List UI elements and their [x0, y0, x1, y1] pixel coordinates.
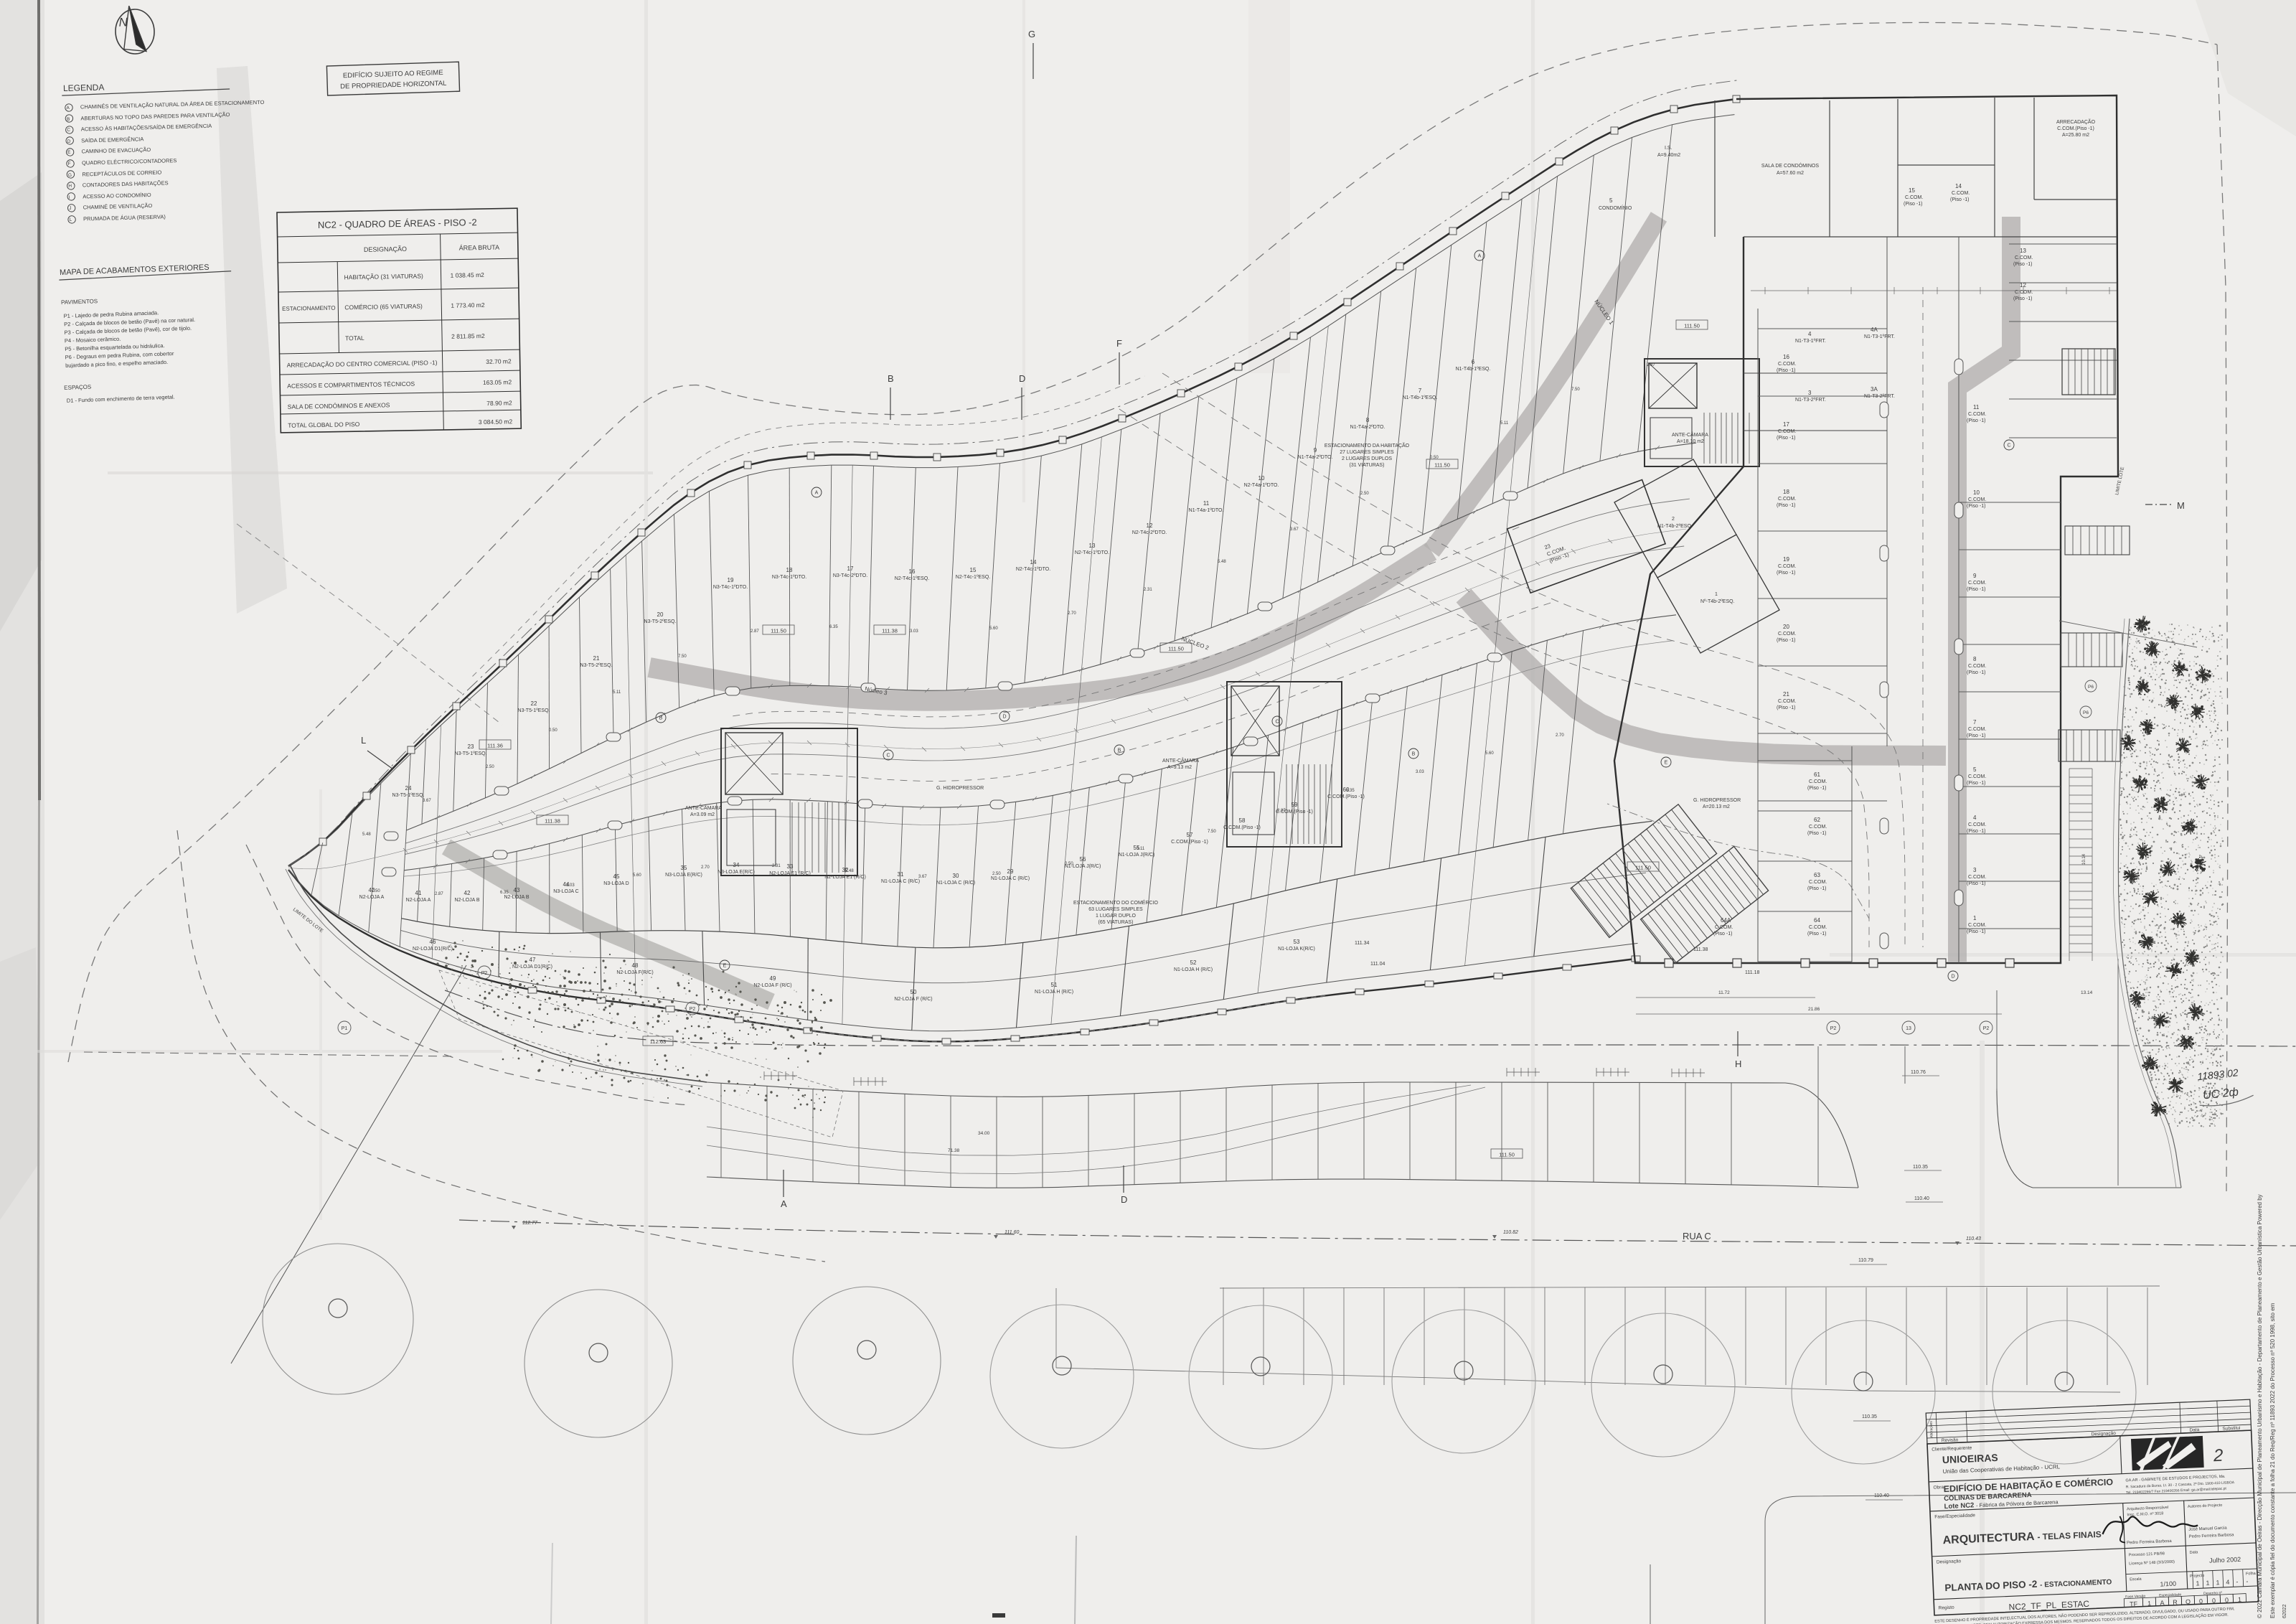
svg-text:22: 22 — [531, 700, 537, 707]
svg-text:15: 15 — [1909, 187, 1915, 194]
svg-text:C.COM.: C.COM. — [1968, 875, 1986, 880]
svg-text:18: 18 — [786, 567, 793, 573]
svg-text:RUA C: RUA C — [1683, 1231, 1711, 1242]
svg-text:N2-LOJA B: N2-LOJA B — [454, 898, 479, 903]
svg-text:N2-LOJA B: N2-LOJA B — [504, 895, 529, 900]
svg-text:9: 9 — [1314, 447, 1317, 454]
svg-text:5: 5 — [1973, 766, 1977, 773]
svg-text:(Piso -1): (Piso -1) — [1713, 931, 1732, 937]
svg-text:F: F — [67, 161, 70, 166]
svg-text:(Piso -1): (Piso -1) — [2013, 296, 2032, 301]
svg-text:(Piso -1): (Piso -1) — [1950, 197, 1969, 202]
svg-text:112.63: 112.63 — [650, 1038, 666, 1045]
svg-text:LEGENDA: LEGENDA — [63, 83, 105, 93]
svg-text:78.90 m2: 78.90 m2 — [486, 399, 512, 407]
svg-text:A: A — [1478, 254, 1482, 259]
svg-text:53: 53 — [1294, 939, 1300, 945]
svg-text:J: J — [69, 206, 71, 211]
svg-text:14: 14 — [1955, 183, 1962, 189]
svg-text:ANTE-CÂMARA: ANTE-CÂMARA — [685, 804, 722, 811]
svg-text:1: 1 — [1973, 915, 1977, 921]
svg-text:TOTAL: TOTAL — [345, 334, 364, 342]
svg-text:C.COM.: C.COM. — [1968, 497, 1986, 502]
svg-text:(Piso -1): (Piso -1) — [1967, 418, 1985, 423]
svg-text:P6: P6 — [2083, 710, 2089, 715]
svg-text:N1-LOJA K(R/C): N1-LOJA K(R/C) — [1278, 947, 1315, 952]
svg-text:ESTACIONAMENTO DA HABITAÇÃO: ESTACIONAMENTO DA HABITAÇÃO — [1325, 442, 1410, 449]
svg-text:C.COM.: C.COM. — [1809, 925, 1827, 930]
svg-text:5.11: 5.11 — [613, 690, 621, 695]
svg-text:C.COM.: C.COM. — [2015, 255, 2033, 261]
svg-text:H: H — [68, 184, 72, 189]
svg-text:ARRECADAÇÃO: ARRECADAÇÃO — [2056, 118, 2096, 125]
svg-text:6: 6 — [1472, 359, 1475, 365]
svg-text:30: 30 — [953, 873, 959, 879]
svg-text:N2-T4a-1ºDTO.: N2-T4a-1ºDTO. — [1244, 483, 1279, 488]
svg-text:N1-LOJA H (R/C): N1-LOJA H (R/C) — [1174, 967, 1213, 972]
svg-text:31: 31 — [898, 871, 904, 878]
svg-text:52: 52 — [1190, 959, 1197, 966]
svg-text:C.COM.: C.COM. — [1809, 825, 1827, 830]
svg-text:N1-T4b-1ºESQ.: N1-T4b-1ºESQ. — [1456, 367, 1491, 372]
svg-text:13: 13 — [1089, 543, 1096, 549]
svg-text:3 084.50 m2: 3 084.50 m2 — [479, 418, 513, 426]
svg-text:43: 43 — [514, 887, 520, 893]
svg-text:3: 3 — [1973, 867, 1977, 873]
svg-text:42: 42 — [464, 890, 471, 896]
svg-text:1: 1 — [1715, 592, 1718, 597]
svg-text:C.COM.: C.COM. — [1968, 822, 1986, 827]
svg-text:13: 13 — [1906, 1026, 1911, 1031]
svg-text:N3-T4c-1ºDTO.: N3-T4c-1ºDTO. — [713, 585, 748, 590]
svg-text:N3-LOJA D: N3-LOJA D — [603, 881, 629, 886]
svg-text:N1-T4a-2ºDTO.: N1-T4a-2ºDTO. — [1298, 455, 1333, 460]
svg-text:N1-T3-1ºFRT.: N1-T3-1ºFRT. — [1864, 334, 1895, 339]
svg-text:27 LUGARES SIMPLES: 27 LUGARES SIMPLES — [1340, 450, 1394, 455]
svg-text:N2-LOJA D1(R/C): N2-LOJA D1(R/C) — [512, 964, 552, 970]
svg-text:3: 3 — [1808, 390, 1812, 396]
svg-text:C.COM.: C.COM. — [1968, 727, 1986, 732]
svg-text:4A: 4A — [1871, 327, 1878, 333]
svg-text:E: E — [723, 964, 727, 969]
svg-text:A=25.80 m2: A=25.80 m2 — [2062, 133, 2089, 138]
svg-text:(Piso -1): (Piso -1) — [1904, 202, 1922, 207]
svg-text:(Piso -1): (Piso -1) — [1967, 781, 1985, 786]
svg-text:A=20.13 m2: A=20.13 m2 — [1703, 804, 1730, 809]
svg-text:2 LUGARES DUPLOS: 2 LUGARES DUPLOS — [1342, 456, 1392, 461]
svg-text:B: B — [659, 716, 663, 721]
svg-text:N1-LOJA J(R/C): N1-LOJA J(R/C) — [1119, 853, 1155, 858]
svg-text:P6: P6 — [2088, 685, 2094, 690]
svg-text:A=57.60 m2: A=57.60 m2 — [1777, 171, 1804, 176]
svg-text:N1-T4b-1ºESQ.: N1-T4b-1ºESQ. — [1403, 395, 1438, 400]
svg-text:N1-T3-2ºFRT.: N1-T3-2ºFRT. — [1795, 398, 1826, 403]
svg-text:1 038.45 m2: 1 038.45 m2 — [450, 271, 484, 279]
svg-text:4: 4 — [1808, 331, 1812, 337]
svg-text:C: C — [67, 128, 70, 133]
svg-text:110.82: 110.82 — [1503, 1230, 1518, 1235]
svg-text:G. HIDROPRESSOR: G. HIDROPRESSOR — [1693, 798, 1741, 803]
svg-text:C.COM.(Piso -1): C.COM.(Piso -1) — [1276, 809, 1313, 815]
svg-text:49: 49 — [770, 975, 776, 982]
svg-text:21: 21 — [1783, 691, 1789, 698]
svg-text:11.72: 11.72 — [1718, 990, 1730, 995]
svg-text:23: 23 — [468, 743, 474, 750]
svg-text:41: 41 — [415, 890, 422, 896]
svg-text:N1-LOJA H (R/C): N1-LOJA H (R/C) — [1035, 990, 1073, 995]
svg-text:A=18.10 m2: A=18.10 m2 — [1677, 439, 1704, 444]
svg-text:21: 21 — [593, 655, 600, 662]
svg-text:G. HIDROPRESSOR: G. HIDROPRESSOR — [936, 786, 984, 791]
svg-text:24: 24 — [405, 785, 412, 792]
svg-text:N2-T4c-1ºESQ.: N2-T4c-1ºESQ. — [895, 576, 930, 581]
svg-text:5.11: 5.11 — [1500, 421, 1509, 426]
svg-text:10.14: 10.14 — [2082, 853, 2086, 865]
svg-text:N2-LOJA F (R/C): N2-LOJA F (R/C) — [753, 983, 791, 988]
svg-text:2.70: 2.70 — [701, 865, 710, 870]
svg-text:N3-LOJA C: N3-LOJA C — [553, 889, 578, 894]
svg-text:N2-T4c-1ºDTO.: N2-T4c-1ºDTO. — [1016, 567, 1050, 572]
svg-text:N2-LOJA A: N2-LOJA A — [406, 898, 431, 903]
svg-text:18: 18 — [1783, 489, 1789, 495]
svg-text:C.COM.: C.COM. — [1905, 195, 1923, 200]
svg-text:N1-LOJA J(R/C): N1-LOJA J(R/C) — [1065, 864, 1101, 869]
svg-text:60: 60 — [1343, 787, 1350, 793]
svg-text:P1: P1 — [342, 1026, 348, 1031]
svg-text:2.31: 2.31 — [772, 864, 781, 868]
svg-text:17: 17 — [847, 565, 854, 572]
svg-text:C.COM.(Piso -1): C.COM.(Piso -1) — [1171, 840, 1208, 845]
svg-text:HABITAÇÃO (31 VIATURAS): HABITAÇÃO (31 VIATURAS) — [344, 272, 424, 281]
svg-text:11: 11 — [1203, 500, 1210, 507]
svg-text:8: 8 — [1366, 417, 1370, 423]
svg-text:7: 7 — [1973, 719, 1977, 726]
svg-text:N2-T4c-1ºDTO.: N2-T4c-1ºDTO. — [1075, 550, 1109, 555]
svg-text:D: D — [1951, 975, 1954, 980]
svg-text:N2-LOJA A: N2-LOJA A — [359, 895, 385, 900]
svg-text:17: 17 — [1783, 421, 1789, 428]
svg-text:N1-T4b-2ºESQ.: N1-T4b-2ºESQ. — [1657, 524, 1693, 529]
svg-text:N1-T3-2ºFRT.: N1-T3-2ºFRT. — [1864, 394, 1895, 399]
svg-text:15: 15 — [970, 567, 977, 573]
svg-text:2: 2 — [1672, 517, 1675, 522]
svg-text:61: 61 — [1814, 771, 1820, 778]
svg-text:3.03: 3.03 — [1416, 770, 1424, 774]
svg-text:N3-T5-2ºESQ.: N3-T5-2ºESQ. — [580, 663, 613, 668]
svg-text:63: 63 — [1814, 872, 1820, 878]
svg-text:N3-LOJA E(R/C): N3-LOJA E(R/C) — [665, 873, 702, 878]
svg-text:N3-T4c-2ºDTO.: N3-T4c-2ºDTO. — [833, 573, 867, 578]
svg-text:71.38: 71.38 — [948, 1148, 960, 1153]
svg-text:56: 56 — [1080, 856, 1086, 863]
svg-text:33: 33 — [787, 863, 794, 870]
svg-text:14: 14 — [1030, 559, 1037, 565]
svg-text:163.05 m2: 163.05 m2 — [483, 378, 512, 386]
svg-text:16: 16 — [909, 568, 916, 575]
svg-text:10: 10 — [1973, 489, 1980, 496]
svg-text:C.COM.: C.COM. — [1968, 774, 1986, 779]
svg-text:A=3.09 m2: A=3.09 m2 — [690, 812, 715, 817]
svg-text:44: 44 — [563, 881, 570, 888]
svg-text:(Piso -1): (Piso -1) — [1967, 733, 1985, 738]
svg-text:7.50: 7.50 — [1571, 388, 1580, 392]
svg-text:G: G — [68, 173, 72, 178]
svg-text:(Piso -1): (Piso -1) — [2013, 262, 2032, 267]
svg-text:112.77: 112.77 — [522, 1221, 538, 1226]
svg-text:N1-T4a-2ºDTO.: N1-T4a-2ºDTO. — [1350, 425, 1385, 430]
svg-text:2.70: 2.70 — [1068, 611, 1076, 616]
svg-text:20: 20 — [657, 611, 664, 618]
svg-text:C.COM.: C.COM. — [1778, 429, 1796, 434]
svg-text:C.COM.(Piso -1): C.COM.(Piso -1) — [1223, 825, 1261, 830]
svg-text:C.COM.: C.COM. — [1952, 191, 1970, 196]
svg-text:16: 16 — [1783, 354, 1789, 360]
svg-text:40: 40 — [369, 887, 375, 893]
svg-text:N3-T5-1ºESQ.: N3-T5-1ºESQ. — [392, 793, 425, 798]
svg-text:C.COM.: C.COM. — [1809, 779, 1827, 784]
svg-text:(Piso -1): (Piso -1) — [1777, 503, 1795, 508]
svg-text:7.50: 7.50 — [1208, 830, 1216, 834]
svg-text:5.48: 5.48 — [362, 832, 371, 837]
svg-text:63 LUGARES SIMPLES: 63 LUGARES SIMPLES — [1088, 907, 1143, 912]
svg-text:ESPAÇOS: ESPAÇOS — [64, 384, 91, 391]
svg-text:3.67: 3.67 — [423, 799, 431, 803]
svg-text:C: C — [886, 754, 890, 759]
svg-text:(Piso -1): (Piso -1) — [1967, 587, 1985, 592]
svg-text:21.86: 21.86 — [1808, 1007, 1820, 1012]
svg-text:A=9.13 m2: A=9.13 m2 — [1167, 765, 1192, 770]
svg-text:6.35: 6.35 — [829, 625, 838, 629]
svg-text:(Piso -1): (Piso -1) — [1807, 831, 1826, 836]
svg-text:DESIGNAÇÃO: DESIGNAÇÃO — [364, 245, 407, 253]
svg-text:2 811.85 m2: 2 811.85 m2 — [451, 332, 485, 340]
svg-text:48: 48 — [632, 962, 639, 969]
svg-text:N2-T4c-1ºESQ.: N2-T4c-1ºESQ. — [956, 575, 991, 580]
svg-text:10: 10 — [1258, 475, 1265, 482]
svg-text:47: 47 — [530, 957, 536, 963]
svg-text:N3-T4c-1ºDTO.: N3-T4c-1ºDTO. — [772, 575, 806, 580]
svg-text:M: M — [2177, 500, 2185, 511]
svg-text:(Piso -1): (Piso -1) — [1967, 670, 1985, 675]
svg-text:(Piso -1): (Piso -1) — [1777, 638, 1795, 643]
svg-text:(Piso -1): (Piso -1) — [1807, 786, 1826, 791]
svg-text:ANTE-CÂMARA: ANTE-CÂMARA — [1162, 757, 1199, 764]
svg-text:64: 64 — [1814, 917, 1820, 924]
svg-text:D: D — [67, 139, 71, 144]
svg-text:D: D — [1002, 715, 1006, 720]
svg-text:2.31: 2.31 — [1144, 588, 1152, 592]
svg-text:32.70 m2: 32.70 m2 — [486, 357, 512, 365]
svg-text:C.COM.: C.COM. — [1809, 880, 1827, 885]
svg-text:C.COM.: C.COM. — [1968, 412, 1986, 417]
svg-text:1 LUGAR DUPLO: 1 LUGAR DUPLO — [1096, 914, 1137, 919]
svg-text:N1-T3-1ºFRT.: N1-T3-1ºFRT. — [1795, 339, 1826, 344]
svg-text:3.03: 3.03 — [910, 629, 918, 634]
svg-text:5.60: 5.60 — [633, 873, 641, 878]
svg-text:110.76: 110.76 — [1911, 1070, 1926, 1075]
svg-text:35: 35 — [681, 865, 687, 871]
svg-text:5: 5 — [1609, 197, 1613, 204]
svg-text:C.COM.: C.COM. — [1968, 664, 1986, 669]
svg-text:(65 VIATURAS): (65 VIATURAS) — [1098, 920, 1134, 925]
svg-text:N1-LOJA C (R/C): N1-LOJA C (R/C) — [936, 881, 975, 886]
svg-text:I.S.: I.S. — [1665, 146, 1672, 151]
svg-text:C.COM.(Piso -1): C.COM.(Piso -1) — [1327, 794, 1365, 799]
svg-text:110.40: 110.40 — [1914, 1196, 1929, 1201]
svg-text:5.60: 5.60 — [1485, 751, 1494, 756]
svg-text:L: L — [70, 217, 72, 222]
svg-text:55: 55 — [1134, 845, 1140, 851]
svg-text:4: 4 — [1973, 815, 1977, 821]
svg-text:(Piso -1): (Piso -1) — [1777, 436, 1795, 441]
svg-text:N2-LOJA F(R/C): N2-LOJA F(R/C) — [616, 970, 653, 975]
svg-text:P2: P2 — [1983, 1026, 1990, 1031]
svg-text:C.COM.: C.COM. — [1778, 632, 1796, 637]
svg-text:(31 VIATURAS): (31 VIATURAS) — [1350, 463, 1385, 468]
svg-text:C.COM.(Piso -1): C.COM.(Piso -1) — [2057, 126, 2094, 131]
svg-text:20: 20 — [1783, 624, 1789, 630]
svg-text:58: 58 — [1239, 817, 1246, 824]
svg-text:(Piso -1): (Piso -1) — [1777, 368, 1795, 373]
svg-text:Nº-T4b-2ºESQ.: Nº-T4b-2ºESQ. — [1700, 599, 1735, 604]
svg-text:C.COM.: C.COM. — [1968, 923, 1986, 928]
svg-text:(Piso -1): (Piso -1) — [1777, 571, 1795, 576]
svg-text:C: C — [2007, 443, 2010, 449]
svg-text:(Piso -1): (Piso -1) — [1967, 504, 1985, 509]
svg-text:62: 62 — [1814, 817, 1820, 823]
svg-text:N2-LOJA F (R/C): N2-LOJA F (R/C) — [894, 997, 932, 1002]
svg-text:19: 19 — [728, 577, 734, 583]
svg-text:(Piso -1): (Piso -1) — [1807, 886, 1826, 891]
svg-text:C.COM.: C.COM. — [1778, 497, 1796, 502]
svg-text:B: B — [67, 117, 70, 122]
svg-text:19: 19 — [1783, 556, 1789, 563]
svg-text:3.67: 3.67 — [1290, 527, 1299, 532]
svg-text:(Piso -1): (Piso -1) — [1777, 705, 1795, 710]
svg-text:0.50: 0.50 — [549, 728, 557, 733]
svg-text:N3-LOJA E(R/C): N3-LOJA E(R/C) — [717, 870, 755, 875]
svg-text:C: C — [1275, 720, 1279, 725]
svg-text:7.50: 7.50 — [678, 654, 687, 659]
svg-text:13: 13 — [2020, 248, 2026, 254]
svg-text:ÁREA BRUTA: ÁREA BRUTA — [459, 244, 500, 252]
svg-text:(Piso -1): (Piso -1) — [1967, 829, 1985, 834]
svg-text:51: 51 — [1051, 982, 1058, 988]
svg-text:3A: 3A — [1871, 386, 1878, 393]
svg-text:E: E — [1665, 761, 1668, 766]
svg-text:2.50: 2.50 — [486, 765, 494, 769]
svg-text:1 773.40 m2: 1 773.40 m2 — [451, 301, 485, 309]
svg-text:13.14: 13.14 — [2081, 990, 2093, 995]
svg-text:N: N — [118, 15, 128, 29]
svg-text:N3-T5-1ºESQ.: N3-T5-1ºESQ. — [455, 751, 487, 756]
svg-text:C.COM.: C.COM. — [1778, 699, 1796, 704]
svg-text:CONDOMÍNIO: CONDOMÍNIO — [1599, 205, 1632, 211]
svg-text:B: B — [1412, 752, 1416, 757]
svg-text:7: 7 — [1418, 388, 1422, 394]
svg-text:C.COM.: C.COM. — [1968, 581, 1986, 586]
svg-text:46: 46 — [430, 939, 436, 945]
svg-text:34.00: 34.00 — [978, 1131, 990, 1136]
svg-text:A: A — [815, 491, 819, 496]
svg-text:5.48: 5.48 — [1218, 560, 1226, 564]
svg-text:P2: P2 — [690, 1007, 696, 1012]
svg-text:TOTAL GLOBAL DO PISO: TOTAL GLOBAL DO PISO — [288, 421, 360, 429]
svg-text:2.50: 2.50 — [1360, 492, 1369, 496]
svg-text:N1-LOJA C (R/C): N1-LOJA C (R/C) — [881, 879, 920, 884]
svg-text:8: 8 — [1973, 656, 1977, 662]
svg-text:PAVIMENTOS: PAVIMENTOS — [61, 298, 98, 306]
svg-text:50: 50 — [911, 989, 917, 995]
svg-text:N1-LOJA C (R/C): N1-LOJA C (R/C) — [991, 876, 1030, 881]
svg-text:110.43: 110.43 — [1966, 1236, 1981, 1242]
svg-text:29: 29 — [1007, 868, 1014, 875]
svg-text:N3-T5-1ºESQ.: N3-T5-1ºESQ. — [518, 708, 550, 713]
svg-text:12: 12 — [1147, 522, 1153, 529]
svg-text:110.79: 110.79 — [1858, 1258, 1873, 1263]
svg-text:N1-T4a-1ºDTO.: N1-T4a-1ºDTO. — [1189, 508, 1224, 513]
svg-text:110.35: 110.35 — [1913, 1165, 1928, 1170]
svg-text:11: 11 — [1973, 404, 1980, 410]
svg-text:C.COM.: C.COM. — [1778, 564, 1796, 569]
svg-text:2.70: 2.70 — [1556, 733, 1564, 738]
svg-text:57: 57 — [1187, 832, 1193, 838]
svg-text:45: 45 — [613, 873, 620, 880]
svg-text:(Piso -1): (Piso -1) — [1807, 931, 1826, 937]
svg-text:A=9.40m2: A=9.40m2 — [1657, 153, 1680, 158]
svg-text:ESTACIONAMENTO: ESTACIONAMENTO — [282, 305, 336, 312]
svg-text:(Piso -1): (Piso -1) — [1967, 929, 1985, 934]
svg-text:ESTACIONAMENTO DO COMÉRCIO: ESTACIONAMENTO DO COMÉRCIO — [1073, 899, 1159, 906]
svg-text:COMÉRCIO (65 VIATURAS): COMÉRCIO (65 VIATURAS) — [344, 302, 423, 311]
svg-text:(Piso -1): (Piso -1) — [1967, 881, 1985, 886]
svg-text:P2: P2 — [1830, 1026, 1837, 1031]
svg-text:2.87: 2.87 — [751, 629, 759, 634]
svg-text:2.87: 2.87 — [435, 892, 443, 896]
svg-text:110.35: 110.35 — [1862, 1414, 1877, 1419]
svg-text:N2-T4c-2ºDTO.: N2-T4c-2ºDTO. — [1132, 530, 1167, 535]
svg-text:9: 9 — [1973, 573, 1977, 579]
svg-text:B: B — [1118, 748, 1121, 754]
svg-text:5.60: 5.60 — [989, 626, 998, 631]
svg-text:111.60: 111.60 — [1004, 1230, 1019, 1235]
svg-text:SALA DE CONDÓMINOS: SALA DE CONDÓMINOS — [1761, 162, 1819, 169]
svg-text:ANTE-CÂMARA: ANTE-CÂMARA — [1672, 431, 1708, 438]
svg-text:C.COM.: C.COM. — [1778, 362, 1796, 367]
svg-text:N3-T5-2ºESQ.: N3-T5-2ºESQ. — [644, 619, 677, 624]
svg-text:N2-LOJA D1(R/C): N2-LOJA D1(R/C) — [413, 947, 453, 952]
